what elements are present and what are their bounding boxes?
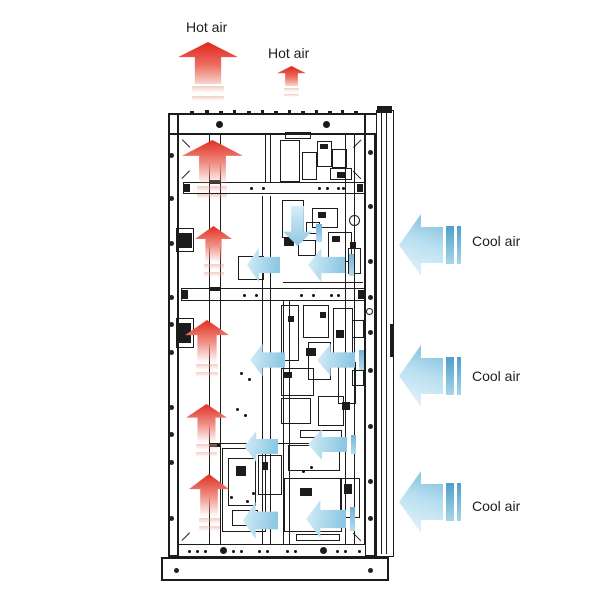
hot-air-arrow-large — [178, 42, 238, 84]
bolt — [169, 350, 174, 355]
cool-air-arrow-1 — [399, 214, 461, 276]
rivet-dot — [344, 550, 347, 553]
component-block — [182, 290, 188, 299]
internal-hot-air-arrow-tail — [196, 444, 217, 450]
rivet-dot — [258, 550, 261, 553]
internal-hot-air-arrow-tail — [197, 186, 227, 192]
airflow-diagram: Hot air Hot air Cool air Cool air Cool a… — [0, 0, 600, 600]
component-box — [352, 320, 364, 338]
component-box — [303, 305, 329, 338]
component-block — [344, 484, 352, 494]
component-block — [342, 402, 350, 410]
component-block — [288, 316, 294, 322]
component-block — [210, 287, 220, 291]
bolt — [216, 121, 223, 128]
internal-cool-air-arrow-tail — [359, 350, 364, 370]
rivet-dot — [286, 550, 289, 553]
rivet-dot — [326, 187, 329, 190]
component-block — [247, 111, 251, 115]
bolt — [220, 547, 227, 554]
bolt — [174, 568, 179, 573]
bolt — [368, 204, 373, 209]
cabinet-side-cap — [377, 106, 392, 113]
rivet-dot — [330, 294, 333, 297]
internal-hot-air-arrow-tail — [204, 272, 224, 277]
bolt — [169, 432, 174, 437]
component-block — [357, 184, 363, 192]
frame-line — [270, 135, 271, 182]
hot-air-label-large: Hot air — [186, 19, 227, 35]
rivet-dot — [250, 187, 253, 190]
cabinet-door-handle — [390, 324, 394, 357]
component-box — [352, 370, 364, 386]
hot-air-arrow-small — [277, 66, 306, 86]
component-box — [332, 149, 347, 168]
component-block — [233, 110, 236, 114]
frame-line — [177, 133, 366, 134]
rivet-dot — [204, 550, 207, 553]
cabinet-top-rail — [170, 115, 376, 135]
rivet-dot — [302, 470, 305, 473]
bolt — [169, 516, 174, 521]
component-block — [288, 110, 291, 114]
component-block — [205, 110, 209, 114]
component-block — [350, 242, 356, 248]
component-box — [302, 152, 317, 180]
component-block — [190, 111, 194, 115]
frame-line — [283, 282, 363, 283]
rivet-dot — [230, 496, 233, 499]
internal-hot-air-arrow-tail — [196, 452, 217, 457]
side-panel-line — [381, 113, 382, 554]
internal-hot-air-arrow-tail — [199, 518, 220, 524]
cool-air-arrow-bar — [446, 226, 454, 264]
rivet-dot — [232, 550, 235, 553]
round-component — [366, 308, 373, 315]
rivet-dot — [262, 187, 265, 190]
bolt — [368, 295, 373, 300]
rivet-dot — [294, 550, 297, 553]
internal-hot-air-arrow-tail — [197, 194, 227, 199]
component-block — [337, 172, 345, 178]
component-box — [296, 534, 340, 541]
bolt — [169, 241, 174, 246]
bolt — [368, 330, 373, 335]
cool-air-label-1: Cool air — [472, 233, 520, 249]
bolt — [169, 322, 174, 327]
component-block — [261, 110, 264, 114]
rivet-dot — [342, 187, 345, 190]
component-block — [184, 184, 190, 192]
component-block — [332, 236, 340, 242]
component-block — [274, 111, 278, 115]
component-block — [236, 466, 246, 476]
component-block — [320, 312, 326, 318]
bolt — [368, 368, 373, 373]
cool-air-arrow-3 — [399, 471, 461, 533]
rivet-dot — [310, 466, 313, 469]
rivet-dot — [300, 294, 303, 297]
cool-air-arrow-head — [399, 214, 443, 276]
component-box — [280, 140, 300, 182]
bolt — [169, 460, 174, 465]
internal-cool-air-arrow-tail — [350, 507, 355, 531]
side-panel-line — [386, 113, 387, 554]
rivet-dot — [337, 187, 340, 190]
cool-air-arrow-2 — [399, 345, 461, 407]
rivet-dot — [266, 550, 269, 553]
component-block — [306, 348, 316, 356]
component-box — [285, 132, 311, 139]
component-block — [341, 110, 344, 114]
rivet-dot — [255, 294, 258, 297]
bolt — [169, 153, 174, 158]
component-block — [318, 212, 326, 218]
rivet-dot — [196, 550, 199, 553]
bolt — [320, 547, 327, 554]
cool-air-arrow-bar — [457, 483, 461, 521]
bolt — [368, 150, 373, 155]
cool-air-label-3: Cool air — [472, 498, 520, 514]
internal-hot-air-arrow-tail — [199, 526, 220, 531]
bolt — [323, 121, 330, 128]
rivet-dot — [244, 414, 247, 417]
bolt — [368, 516, 373, 521]
cool-air-arrow-head — [399, 345, 443, 407]
cool-air-arrow-bar — [457, 357, 461, 395]
component-block — [320, 144, 328, 149]
rivet-dot — [318, 187, 321, 190]
cool-air-arrow-bar — [446, 483, 454, 521]
rivet-dot — [248, 378, 251, 381]
internal-hot-air-arrow-tail — [196, 364, 218, 370]
hot-air-arrow-tail — [192, 86, 224, 93]
hot-air-arrow-tail — [284, 88, 299, 92]
component-block — [300, 488, 312, 496]
component-box — [258, 455, 282, 495]
component-block — [219, 111, 223, 115]
rivet-dot — [337, 294, 340, 297]
rivet-dot — [312, 294, 315, 297]
rivet-dot — [188, 550, 191, 553]
component-block — [336, 330, 344, 338]
bolt — [169, 295, 174, 300]
hot-air-label-small: Hot air — [268, 45, 309, 61]
frame-line — [265, 135, 266, 182]
bolt — [368, 568, 373, 573]
rivet-dot — [240, 550, 243, 553]
bolt — [169, 196, 174, 201]
rivet-dot — [336, 550, 339, 553]
component-box — [318, 396, 344, 426]
component-block — [262, 462, 268, 470]
internal-hot-air-arrow-tail — [196, 372, 218, 377]
component-box — [281, 398, 311, 424]
component-block — [179, 233, 192, 248]
hot-air-arrow-tail — [284, 94, 299, 97]
component-block — [328, 111, 332, 115]
component-block — [315, 110, 318, 114]
bolt — [368, 259, 373, 264]
cool-air-label-2: Cool air — [472, 368, 520, 384]
rivet-dot — [236, 408, 239, 411]
component-block — [301, 111, 305, 115]
bolt — [368, 424, 373, 429]
rivet-dot — [243, 294, 246, 297]
component-block — [354, 111, 358, 115]
cabinet-base-plinth — [161, 557, 389, 581]
internal-cool-air-arrow-tail — [351, 435, 356, 454]
hot-air-arrow-tail — [192, 96, 224, 101]
bolt — [368, 479, 373, 484]
bolt — [169, 405, 174, 410]
rivet-dot — [240, 372, 243, 375]
cool-air-arrow-head — [399, 471, 443, 533]
internal-cool-air-arrow-tail — [349, 254, 354, 276]
round-component — [349, 215, 360, 226]
internal-cool-air-arrow-tail — [316, 224, 322, 242]
cool-air-arrow-bar — [446, 357, 454, 395]
rivet-dot — [246, 500, 249, 503]
component-block — [358, 290, 364, 299]
component-block — [284, 372, 292, 378]
internal-hot-air-arrow-tail — [204, 264, 224, 270]
rivet-dot — [358, 550, 361, 553]
cool-air-arrow-bar — [457, 226, 461, 264]
rivet-dot — [252, 492, 255, 495]
